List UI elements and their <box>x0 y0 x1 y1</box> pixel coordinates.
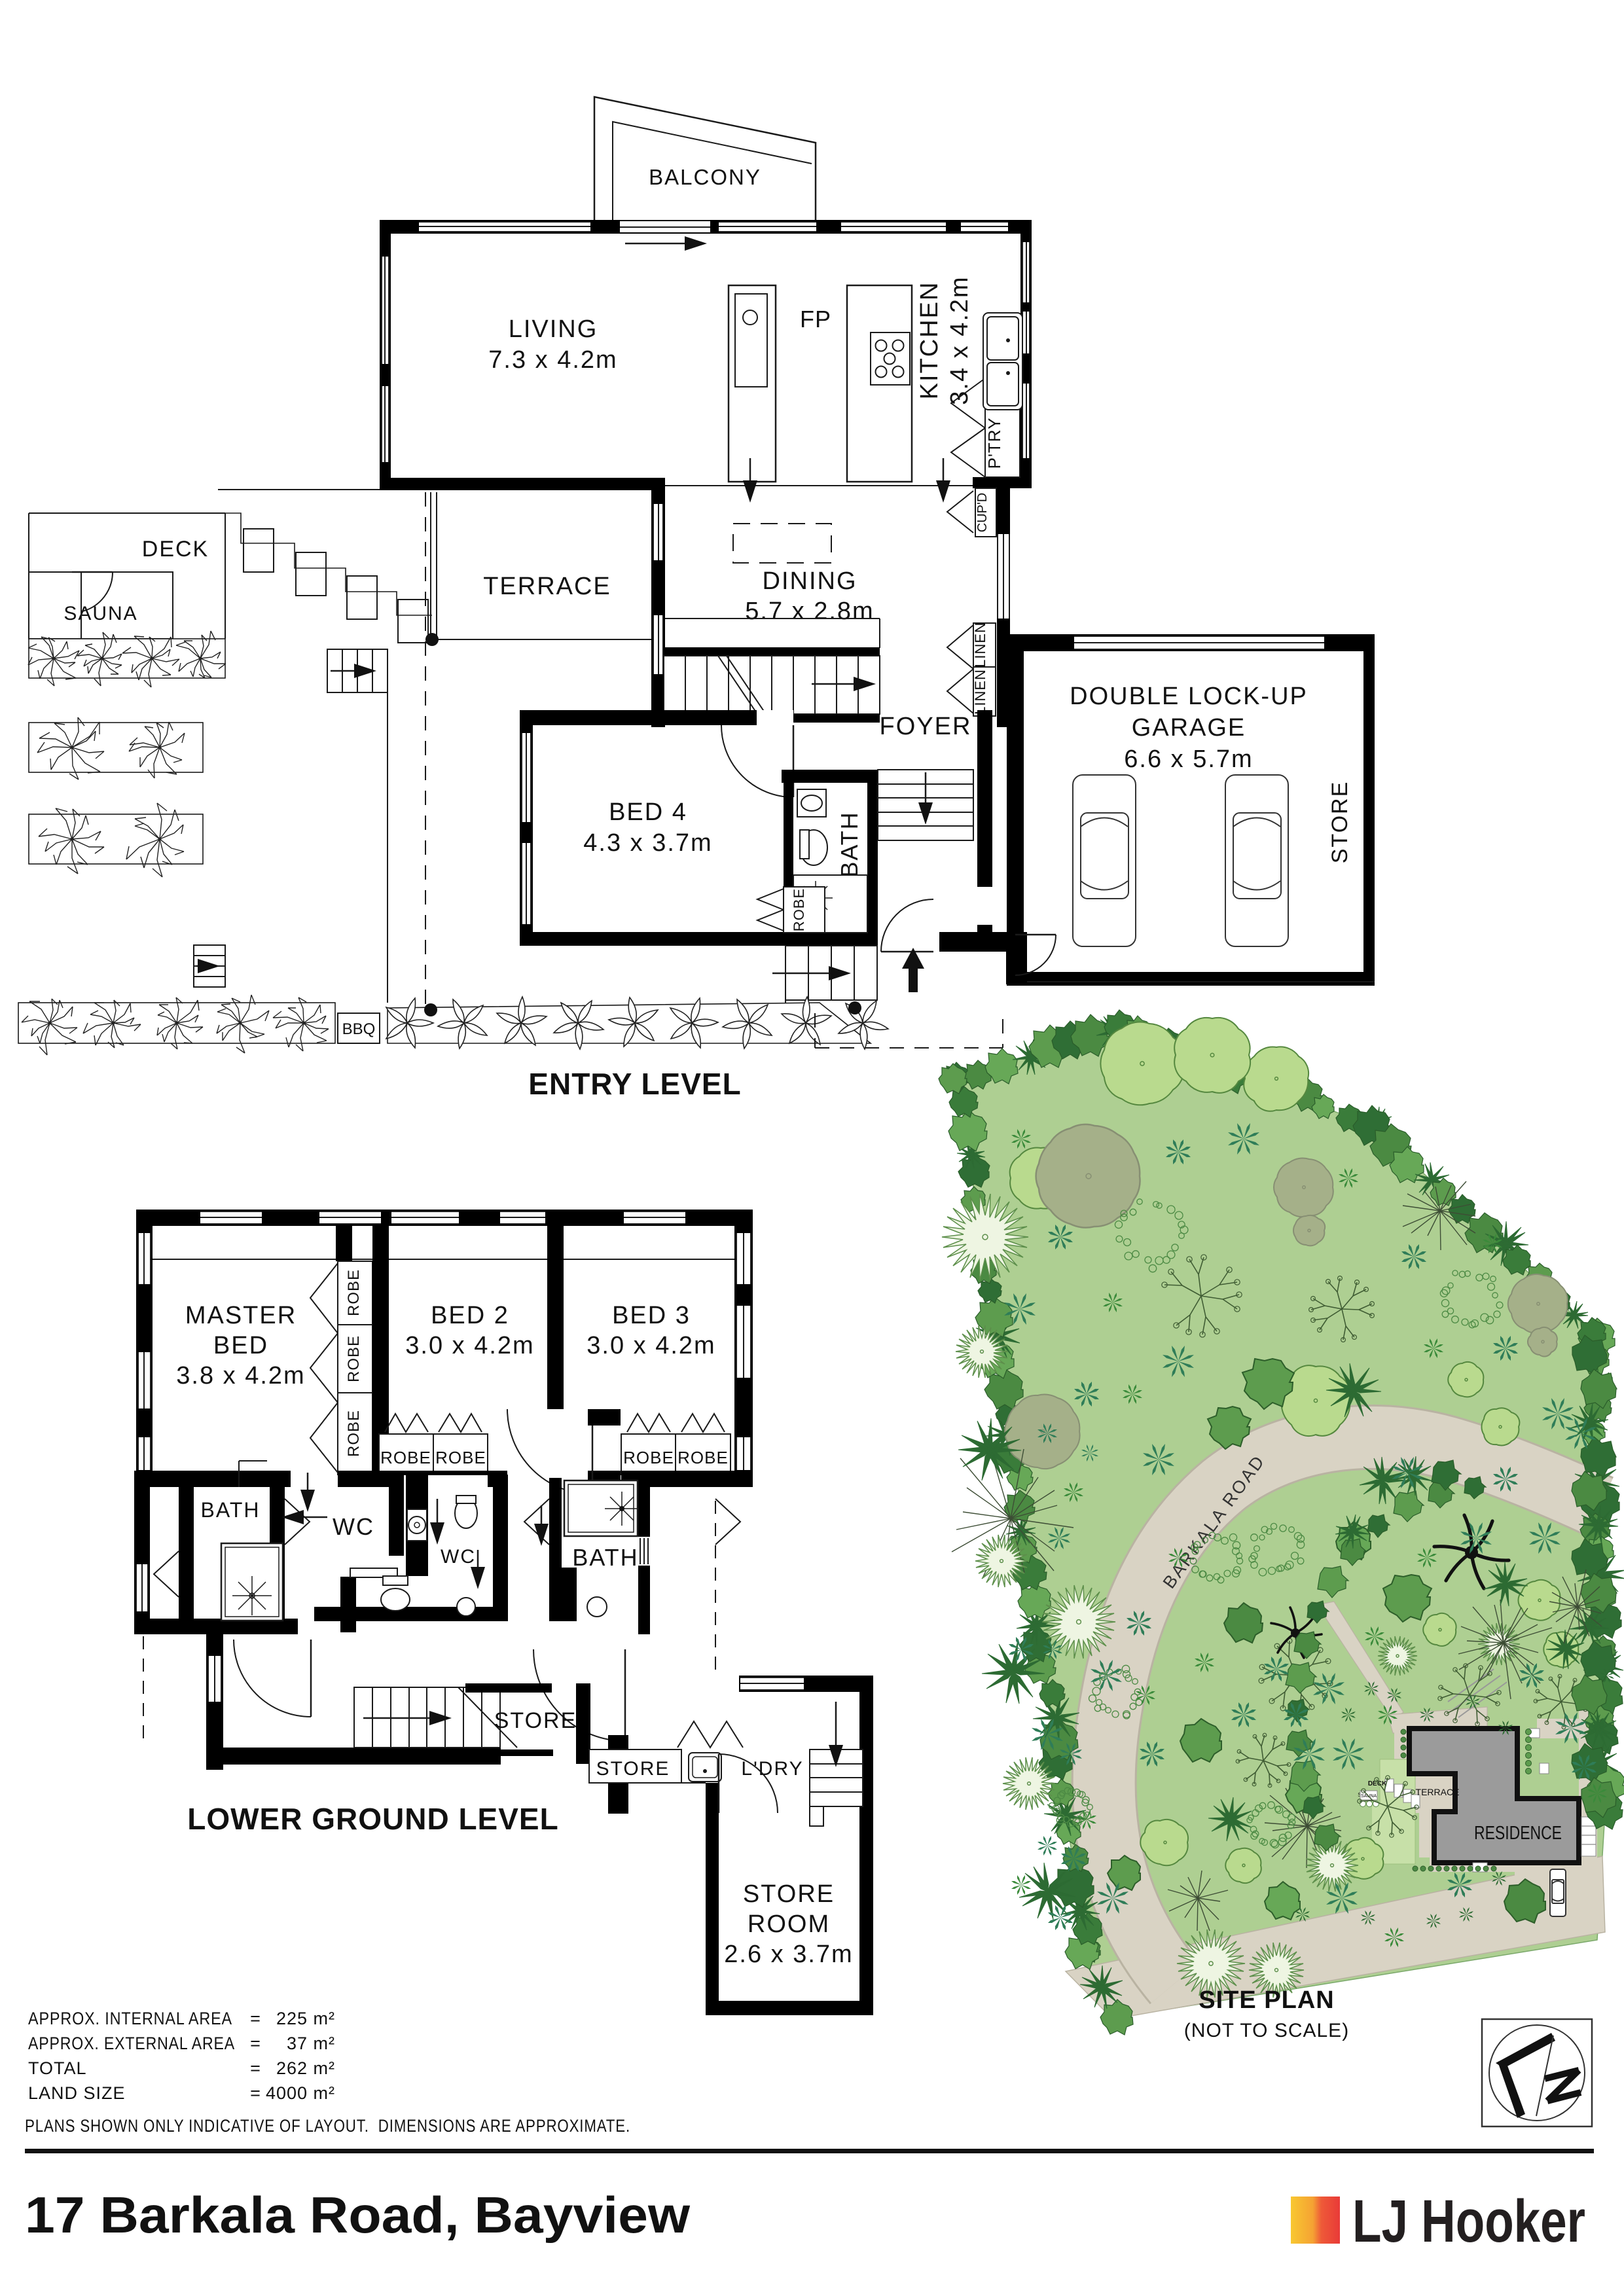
svg-text:STORE: STORE <box>1327 781 1352 864</box>
svg-text:STORE: STORE <box>494 1708 577 1733</box>
svg-text:37 m²: 37 m² <box>287 2034 335 2053</box>
svg-text:BBQ: BBQ <box>342 1020 376 1038</box>
svg-text:L'DRY: L'DRY <box>741 1758 803 1780</box>
svg-text:WC: WC <box>441 1546 476 1568</box>
svg-text:P'TRY: P'TRY <box>984 418 1004 469</box>
svg-text:DECK: DECK <box>142 537 209 562</box>
svg-text:BATH: BATH <box>836 811 863 877</box>
svg-text:GARAGE: GARAGE <box>1132 714 1246 742</box>
svg-text:3.0 x 4.2m: 3.0 x 4.2m <box>405 1332 534 1359</box>
svg-text:3.4 x 4.2m: 3.4 x 4.2m <box>946 276 973 404</box>
svg-text:LINEN: LINEN <box>972 622 988 668</box>
svg-text:STORE: STORE <box>596 1758 670 1780</box>
svg-text:DOUBLE LOCK-UP: DOUBLE LOCK-UP <box>1070 683 1308 710</box>
svg-text:ROOM: ROOM <box>748 1910 830 1938</box>
svg-text:=: = <box>250 2058 261 2078</box>
svg-text:TERRACE: TERRACE <box>483 573 611 600</box>
svg-text:FP: FP <box>800 306 831 332</box>
svg-text:BED 3: BED 3 <box>612 1302 691 1329</box>
svg-text:ROBE: ROBE <box>623 1448 674 1467</box>
svg-text:ROBE: ROBE <box>380 1448 431 1467</box>
svg-text:BED 2: BED 2 <box>431 1302 509 1329</box>
svg-text:3.8 x 4.2m: 3.8 x 4.2m <box>176 1362 305 1390</box>
svg-text:BED: BED <box>213 1332 268 1359</box>
svg-text:DINING: DINING <box>763 567 857 595</box>
svg-text:=: = <box>250 2034 261 2053</box>
svg-text:KITCHEN: KITCHEN <box>916 281 943 400</box>
svg-text:ROBE: ROBE <box>791 888 807 931</box>
svg-text:BALCONY: BALCONY <box>649 165 761 189</box>
svg-text:BATH: BATH <box>201 1498 261 1522</box>
svg-text:ROBE: ROBE <box>435 1448 486 1467</box>
svg-text:LOWER GROUND LEVEL: LOWER GROUND LEVEL <box>187 1802 558 1836</box>
svg-text:LAND SIZE: LAND SIZE <box>28 2083 126 2103</box>
svg-text:4000 m²: 4000 m² <box>266 2083 335 2103</box>
svg-text:STORE: STORE <box>743 1880 835 1908</box>
svg-text:262 m²: 262 m² <box>276 2058 335 2078</box>
svg-text:TOTAL: TOTAL <box>28 2058 87 2078</box>
svg-text:225 m²: 225 m² <box>276 2009 335 2028</box>
svg-text:ROBE: ROBE <box>345 1335 363 1382</box>
svg-text:LJ Hooker: LJ Hooker <box>1352 2188 1585 2255</box>
svg-text:WC: WC <box>333 1513 374 1540</box>
svg-text:7.3 x 4.2m: 7.3 x 4.2m <box>488 346 617 374</box>
svg-text:(NOT TO SCALE): (NOT TO SCALE) <box>1184 2020 1349 2041</box>
svg-text:LINEN: LINEN <box>972 669 988 715</box>
svg-text:MASTER: MASTER <box>185 1302 297 1329</box>
svg-text:SITE PLAN: SITE PLAN <box>1199 1986 1334 2014</box>
svg-text:17 Barkala Road, Bayview: 17 Barkala Road, Bayview <box>25 2186 690 2244</box>
svg-text:BATH: BATH <box>572 1544 638 1571</box>
svg-text:ROBE: ROBE <box>677 1448 729 1467</box>
svg-text:PLANS SHOWN ONLY INDICATIVE OF: PLANS SHOWN ONLY INDICATIVE OF LAYOUT. D… <box>25 2116 630 2136</box>
svg-text:BED 4: BED 4 <box>609 798 687 826</box>
svg-text:6.6 x 5.7m: 6.6 x 5.7m <box>1124 745 1253 773</box>
svg-text:=: = <box>250 2083 261 2103</box>
svg-text:APPROX. EXTERNAL AREA: APPROX. EXTERNAL AREA <box>28 2034 235 2053</box>
svg-text:APPROX. INTERNAL AREA: APPROX. INTERNAL AREA <box>28 2009 232 2028</box>
svg-text:ROBE: ROBE <box>345 1410 363 1457</box>
svg-text:CUP'D: CUP'D <box>975 493 990 533</box>
svg-text:RESIDENCE: RESIDENCE <box>1474 1823 1562 1844</box>
svg-text:=: = <box>250 2009 261 2028</box>
svg-text:SAUNA: SAUNA <box>63 603 137 624</box>
svg-text:3.0 x 4.2m: 3.0 x 4.2m <box>586 1332 715 1359</box>
svg-text:LIVING: LIVING <box>509 315 598 343</box>
svg-text:4.3 x 3.7m: 4.3 x 3.7m <box>583 829 712 857</box>
svg-text:5.7 x 2.8m: 5.7 x 2.8m <box>745 598 874 625</box>
svg-text:TERRACE: TERRACE <box>1416 1787 1460 1797</box>
svg-text:FOYER: FOYER <box>880 713 972 740</box>
svg-text:ROBE: ROBE <box>345 1269 363 1316</box>
svg-text:ENTRY LEVEL: ENTRY LEVEL <box>528 1067 741 1101</box>
svg-text:2.6 x 3.7m: 2.6 x 3.7m <box>724 1941 853 1968</box>
